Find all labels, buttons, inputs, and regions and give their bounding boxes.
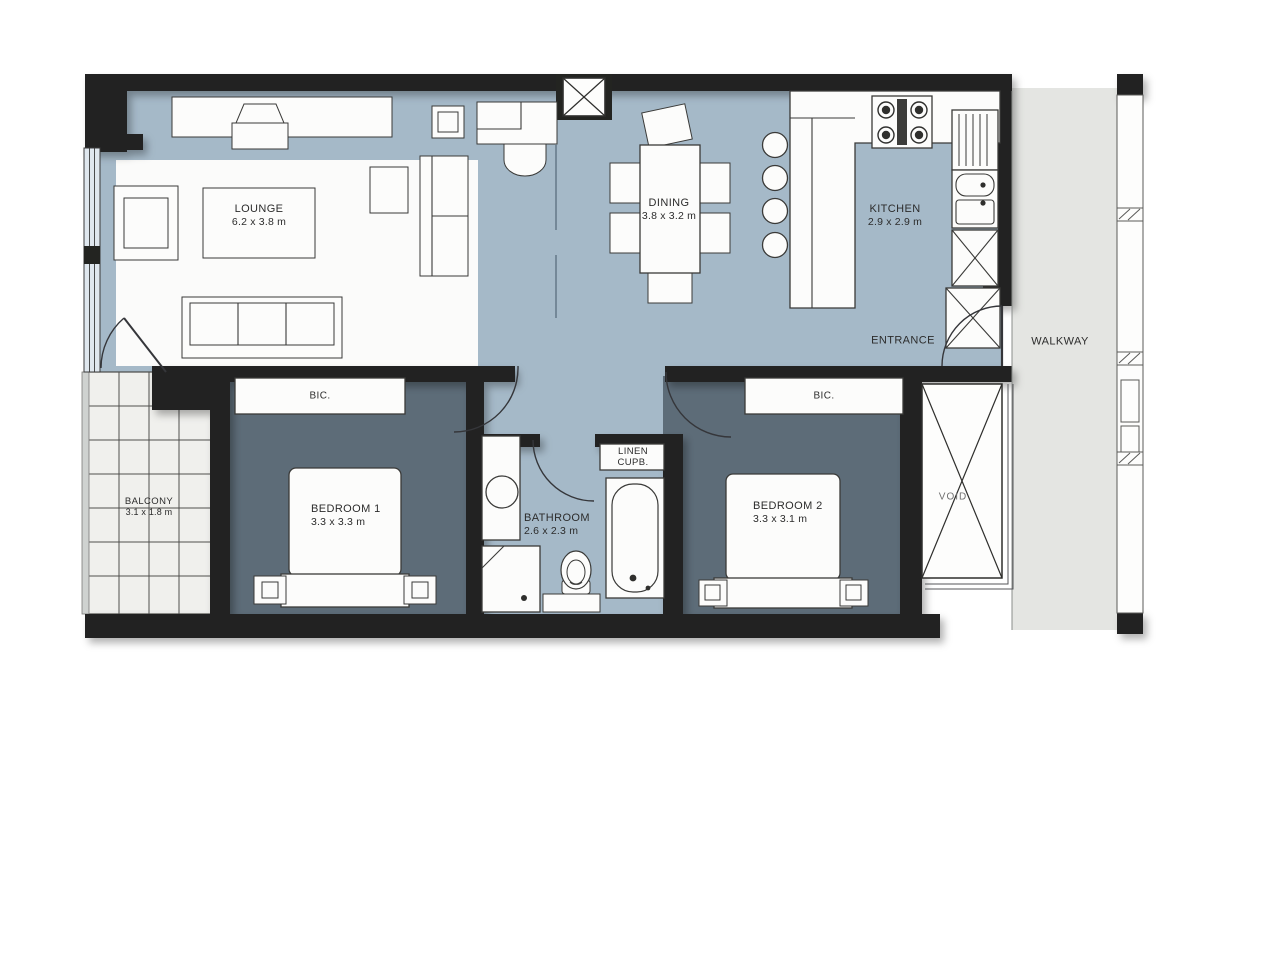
floor-plan-page: LOUNGE 6.2 x 3.8 m DINING 3.8 x 3.2 m KI… [0,0,1280,960]
balcony-corner-wall [152,366,212,410]
bedroom1-label: BEDROOM 1 3.3 x 3.3 m [311,503,381,529]
toilet-icon [561,551,591,594]
sofa-icon [182,297,342,358]
shower-icon [482,546,540,612]
structural-column-icon [556,74,612,120]
bedroom2-name: BEDROOM 2 [753,500,823,513]
wall-unit-icon [432,106,464,138]
entrance-name: ENTRANCE [871,335,935,348]
desk-chair-icon [504,144,546,176]
nightstand-icon [404,576,436,604]
bathroom-dims: 2.6 x 2.3 m [524,525,590,538]
void-name: VOID [939,491,967,504]
kitchen-name: KITCHEN [868,203,922,216]
void-shaft [922,384,1013,589]
nightstand-icon [840,580,868,606]
kitchen-sink-icon [952,110,998,228]
window-mullion [84,246,100,264]
top-wall [85,74,1010,91]
tv-cabinet-icon [232,123,288,149]
basin-icon [486,476,518,508]
bic2-name: BIC. [813,390,834,403]
linen-name-line2: CUPB. [617,457,648,468]
bedroom2-void-wall [900,382,922,614]
bathtub-icon [606,478,664,598]
lounge-dims: 6.2 x 3.8 m [232,216,286,229]
walkway-name: WALKWAY [1031,336,1088,349]
dining-name: DINING [642,197,696,210]
kitchen-label: KITCHEN 2.9 x 2.9 m [868,203,922,229]
lounge-window-wall [84,148,100,372]
balcony-name: BALCONY [125,496,173,507]
void-label: VOID [939,491,967,504]
balcony-dims: 3.1 x 1.8 m [125,507,173,518]
bedroom1-name: BEDROOM 1 [311,503,381,516]
bed2-base-icon [714,578,852,608]
bedroom1-dims: 3.3 x 3.3 m [311,516,381,529]
dining-chair-icon [610,163,640,203]
nightstand-icon [699,580,727,606]
floor-plan-drawing [0,0,1280,960]
bathroom-ledge [543,594,600,612]
bedroom1-bathroom-wall [466,382,484,614]
nightstand-icon [254,576,286,604]
balcony-bedroom1-wall [210,372,230,614]
dining-chair-icon [700,213,730,253]
bic1-label: BIC. [309,390,330,403]
bedroom2-dims: 3.3 x 3.1 m [753,513,823,526]
walkway-label: WALKWAY [1031,336,1088,349]
balcony-railing [82,372,89,614]
bathroom-name: BATHROOM [524,512,590,525]
dining-chair-icon [700,163,730,203]
walkway-wall-cap-top [1117,74,1143,96]
side-table-icon [370,167,408,213]
dining-chair-icon [648,273,692,303]
tv-icon [236,104,284,123]
entrance-label: ENTRANCE [871,335,935,348]
desk-icon [477,102,557,144]
dining-chair-icon [610,213,640,253]
dining-label: DINING 3.8 x 3.2 m [642,197,696,223]
walkway-wall-cap-bottom [1117,612,1143,634]
bottom-wall [85,614,940,638]
bedroom2-label: BEDROOM 2 3.3 x 3.1 m [753,500,823,526]
bathtub-bedroom2-wall [663,434,683,614]
bic1-name: BIC. [309,390,330,403]
lounge-label: LOUNGE 6.2 x 3.8 m [232,203,286,229]
balcony-label: BALCONY 3.1 x 1.8 m [125,496,173,518]
dining-dims: 3.8 x 3.2 m [642,210,696,223]
bed2-icon [726,474,840,580]
linen-name-line1: LINEN [617,446,648,457]
kitchen-dims: 2.9 x 2.9 m [868,216,922,229]
linen-cupboard-label: LINEN CUPB. [617,446,648,468]
bic2-label: BIC. [813,390,834,403]
bathroom-label: BATHROOM 2.6 x 2.3 m [524,512,590,538]
bed1-base-icon [281,574,409,607]
lounge-name: LOUNGE [232,203,286,216]
stove-icon [872,96,932,148]
